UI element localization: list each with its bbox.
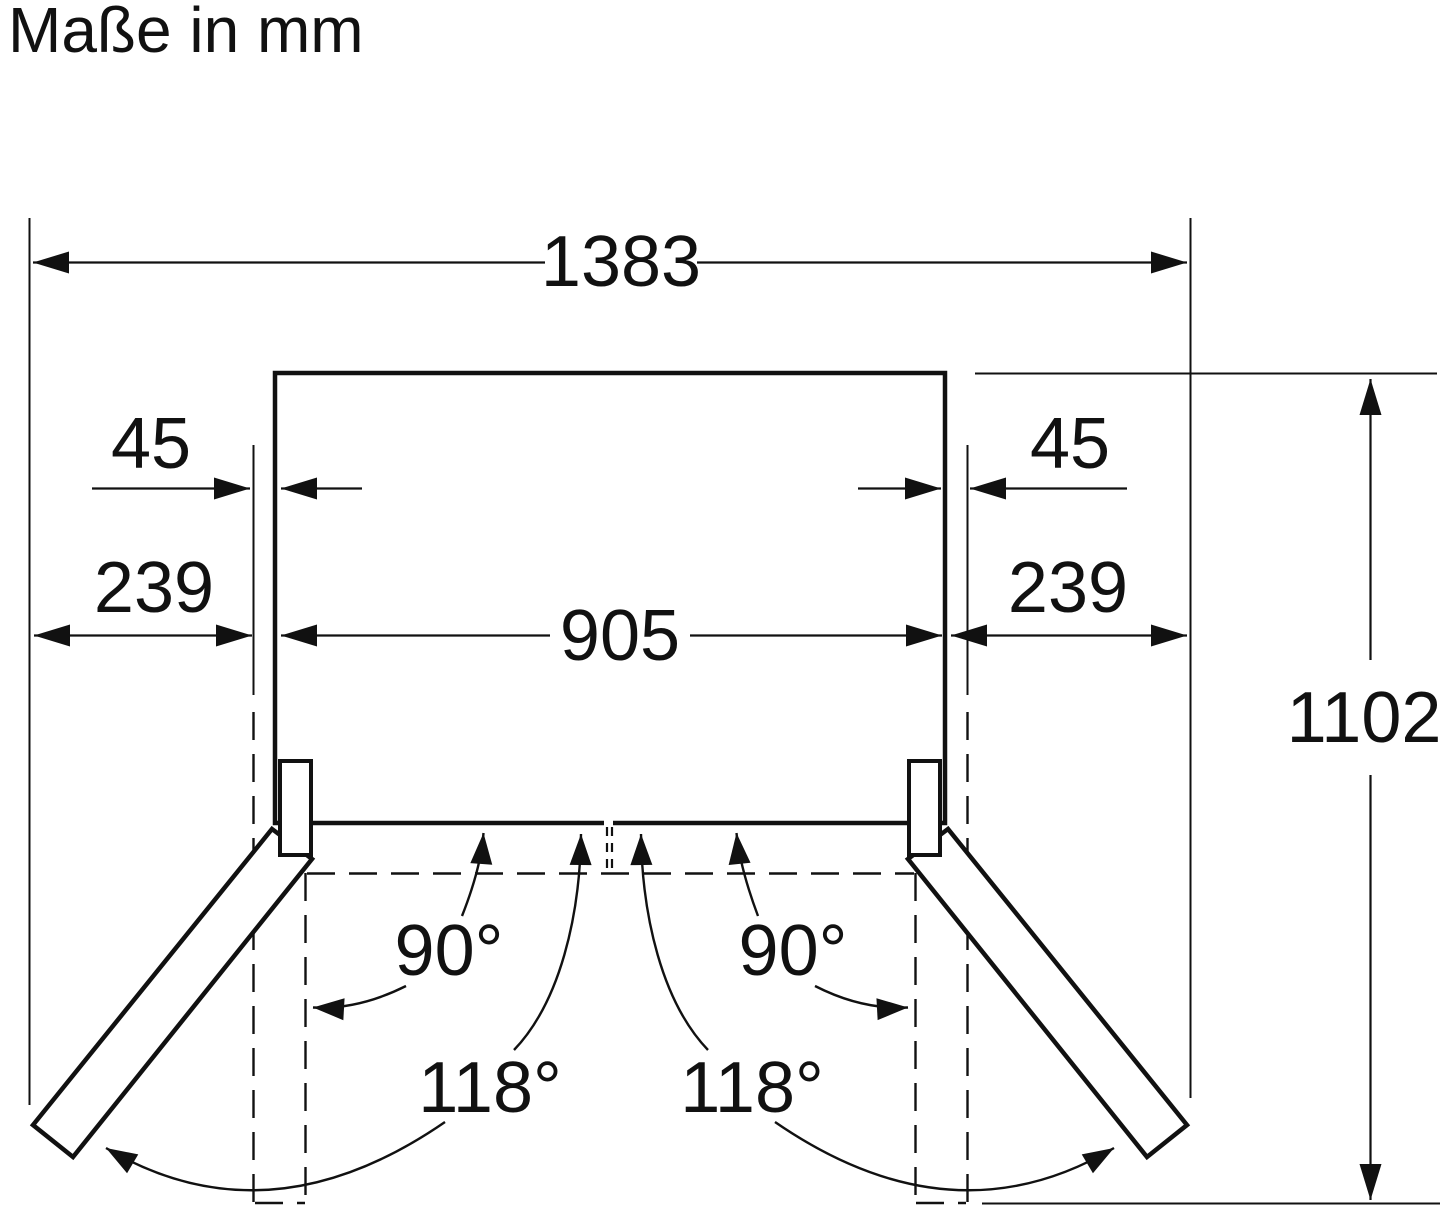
angle-118-right-closed-pointer xyxy=(641,834,708,1050)
dim-right-overhang: 239 xyxy=(951,548,1187,636)
fridge-dimensions-drawing: Maße in mm 1383 45 45 239 905 xyxy=(0,0,1445,1212)
dimension-diagram: Maße in mm 1383 45 45 239 905 xyxy=(0,0,1445,1212)
right-door-open xyxy=(908,829,1187,1157)
dim-1102-label: 1102 xyxy=(1287,678,1442,758)
left-door-open xyxy=(33,829,312,1157)
dim-239l-label: 239 xyxy=(94,548,214,628)
dim-depth-doors-open: 1102 xyxy=(1287,379,1442,1200)
angle-90-right-label: 90° xyxy=(739,911,848,991)
angle-118-right-label: 118° xyxy=(680,1048,824,1128)
dim-overall-width: 1383 xyxy=(33,222,1187,302)
left-hinge xyxy=(280,761,311,855)
angle-118-left-arc xyxy=(106,1122,445,1190)
dim-45l-label: 45 xyxy=(111,404,191,484)
right-hinge xyxy=(909,761,940,855)
angle-118-left-label: 118° xyxy=(418,1048,562,1128)
dim-45r-label: 45 xyxy=(1030,404,1110,484)
angle-118-right-arc xyxy=(775,1122,1114,1190)
angle-90-left-label: 90° xyxy=(395,911,504,991)
dim-239r-label: 239 xyxy=(1008,548,1128,628)
dim-1383-label: 1383 xyxy=(541,222,701,302)
front-edge-center-gap xyxy=(604,818,613,828)
dim-left-overhang: 239 xyxy=(34,548,252,636)
dim-905-label: 905 xyxy=(560,596,680,676)
drawing-title: Maße in mm xyxy=(8,0,364,66)
angle-90-left-open-pointer xyxy=(313,986,406,1008)
angle-118-left-closed-pointer xyxy=(514,834,581,1050)
